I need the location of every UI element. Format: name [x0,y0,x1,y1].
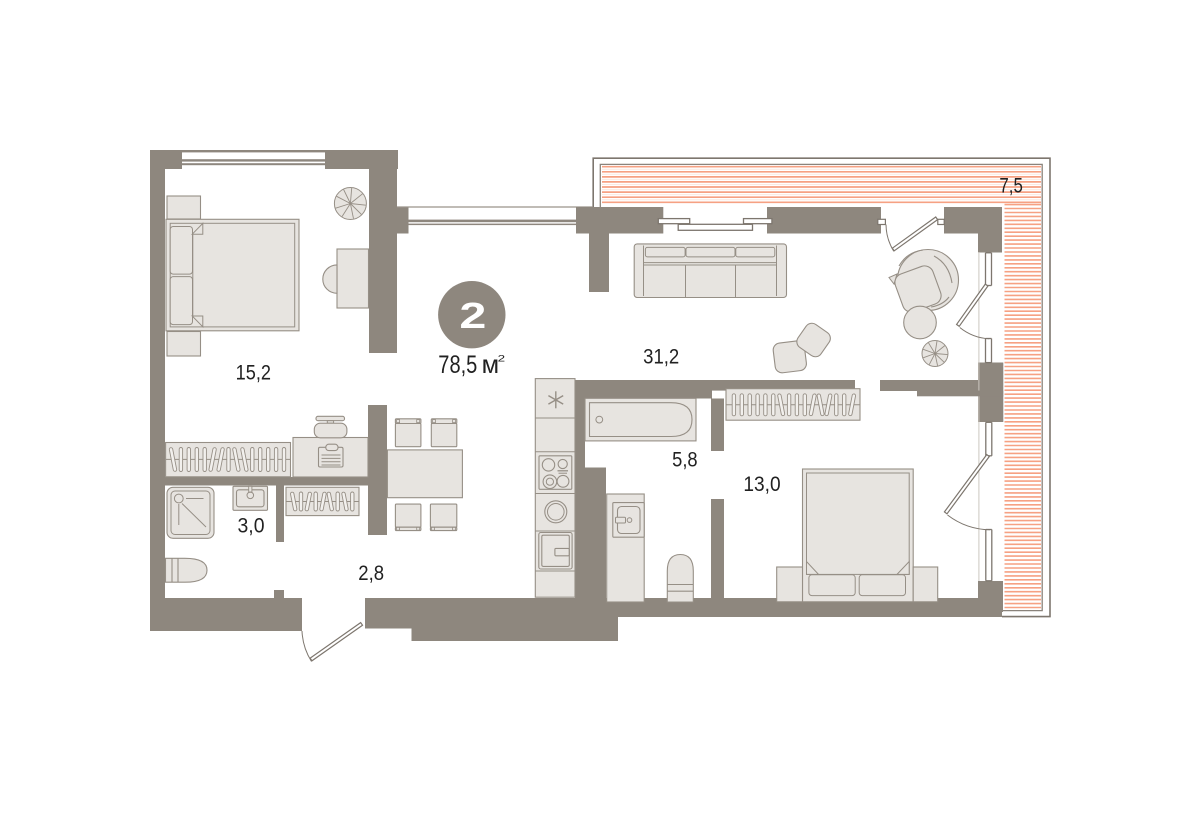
svg-text:5,8: 5,8 [672,448,698,471]
svg-text:13,0: 13,0 [743,473,780,496]
svg-text:15,2: 15,2 [236,362,271,385]
svg-text:2: 2 [498,354,506,365]
svg-text:м: м [482,351,500,379]
svg-text:78,5: 78,5 [438,351,477,379]
svg-text:31,2: 31,2 [643,345,679,368]
svg-text:2: 2 [459,295,486,336]
svg-text:2,8: 2,8 [358,562,384,585]
svg-text:3,0: 3,0 [238,515,265,538]
svg-text:7,5: 7,5 [999,175,1023,198]
